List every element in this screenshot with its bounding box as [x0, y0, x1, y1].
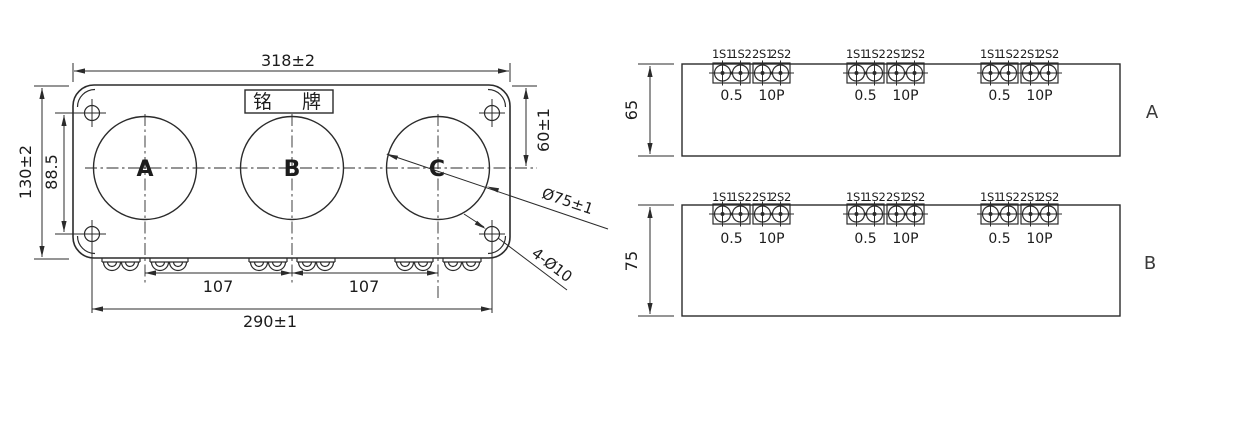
- class-label-05: 0.5: [988, 231, 1010, 247]
- leader-mount-holes: 4-Ø10: [464, 214, 576, 290]
- dim-hole-column-pitch: 290±1: [92, 309, 492, 331]
- terminal-label-1s2: 1S2: [998, 47, 1019, 61]
- svg-text:Ø75±1: Ø75±1: [540, 184, 596, 218]
- class-label-10p: 10P: [892, 231, 918, 247]
- terminal-strip: [443, 258, 481, 270]
- terminal-label-1s2: 1S2: [864, 47, 885, 61]
- dim-hole-row-pitch: 88.5: [42, 115, 64, 232]
- svg-text:75: 75: [622, 251, 641, 271]
- technical-drawing: A B C 铭牌 318±2 130±2: [0, 0, 1248, 432]
- class-label-05: 0.5: [854, 231, 876, 247]
- row-b-label: B: [1144, 253, 1156, 274]
- terminal-label-2s2: 2S2: [904, 47, 925, 61]
- leader-window-diameter: Ø75±1: [386, 154, 608, 229]
- terminal-label-1s2: 1S2: [730, 47, 751, 61]
- terminal-strip: [150, 258, 188, 270]
- dim-top-to-center: 60±1: [512, 86, 553, 166]
- terminal-label-1s2: 1S2: [864, 190, 885, 204]
- terminal-label-2s2: 2S2: [770, 190, 791, 204]
- terminal-group-labels-row-a: 1S1 1S2 2S1 2S2 0.5 10P 1S1 1S2 2S1 2S2 …: [712, 47, 1059, 104]
- drawing-canvas: A B C 铭牌 318±2 130±2: [0, 0, 1248, 432]
- dim-window-pitch-left: 107: [145, 273, 292, 296]
- dim-overall-width: 318±2: [73, 51, 510, 82]
- terminal-group-labels-row-b: 1S1 1S2 2S1 2S2 0.5 10P 1S1 1S2 2S1 2S2 …: [712, 190, 1059, 247]
- row-a-label: A: [1146, 102, 1159, 123]
- svg-text:107: 107: [349, 277, 380, 296]
- class-label-10p: 10P: [892, 88, 918, 104]
- terminal-label-2s2: 2S2: [770, 47, 791, 61]
- terminal-strip: [297, 258, 335, 270]
- class-label-05: 0.5: [988, 88, 1010, 104]
- terminal-label-1s2: 1S2: [730, 190, 751, 204]
- terminal-strip: [395, 258, 433, 270]
- terminal-view-row-b: 75 1S1 1S2 2S1 2S2 0.5 10P 1S1 1S2 2S1 2…: [622, 190, 1156, 316]
- svg-text:318±2: 318±2: [261, 51, 315, 70]
- terminal-label-2s2: 2S2: [1038, 190, 1059, 204]
- nameplate-text: 铭牌: [253, 91, 351, 113]
- svg-text:107: 107: [203, 277, 234, 296]
- phase-a-label: A: [136, 157, 153, 182]
- svg-text:60±1: 60±1: [534, 108, 553, 152]
- svg-text:4-Ø10: 4-Ø10: [528, 244, 575, 286]
- phase-b-label: B: [284, 157, 301, 182]
- terminal-label-1s2: 1S2: [998, 190, 1019, 204]
- dim-row-a-height: 65: [622, 64, 674, 156]
- class-label-10p: 10P: [1026, 231, 1052, 247]
- svg-text:130±2: 130±2: [16, 145, 35, 199]
- class-label-10p: 10P: [758, 231, 784, 247]
- terminal-strip: [102, 258, 140, 270]
- svg-text:290±1: 290±1: [243, 312, 297, 331]
- front-view: A B C 铭牌 318±2 130±2: [16, 51, 608, 331]
- class-label-10p: 10P: [1026, 88, 1052, 104]
- class-label-10p: 10P: [758, 88, 784, 104]
- panel-b-outline: [682, 205, 1120, 316]
- class-label-05: 0.5: [854, 88, 876, 104]
- class-label-05: 0.5: [720, 88, 742, 104]
- terminal-label-2s2: 2S2: [1038, 47, 1059, 61]
- svg-text:88.5: 88.5: [42, 154, 61, 190]
- svg-text:65: 65: [622, 100, 641, 120]
- terminal-strip: [249, 258, 287, 270]
- class-label-05: 0.5: [720, 231, 742, 247]
- dim-row-b-height: 75: [622, 205, 674, 316]
- dim-window-pitch-right: 107: [292, 273, 438, 296]
- terminal-label-2s2: 2S2: [904, 190, 925, 204]
- hole-crosshairs: [55, 99, 505, 313]
- terminal-view-row-a: 65 1S1 1S2 2S1 2S2 0.5 10P 1S1 1S2 2S1 2…: [622, 47, 1159, 156]
